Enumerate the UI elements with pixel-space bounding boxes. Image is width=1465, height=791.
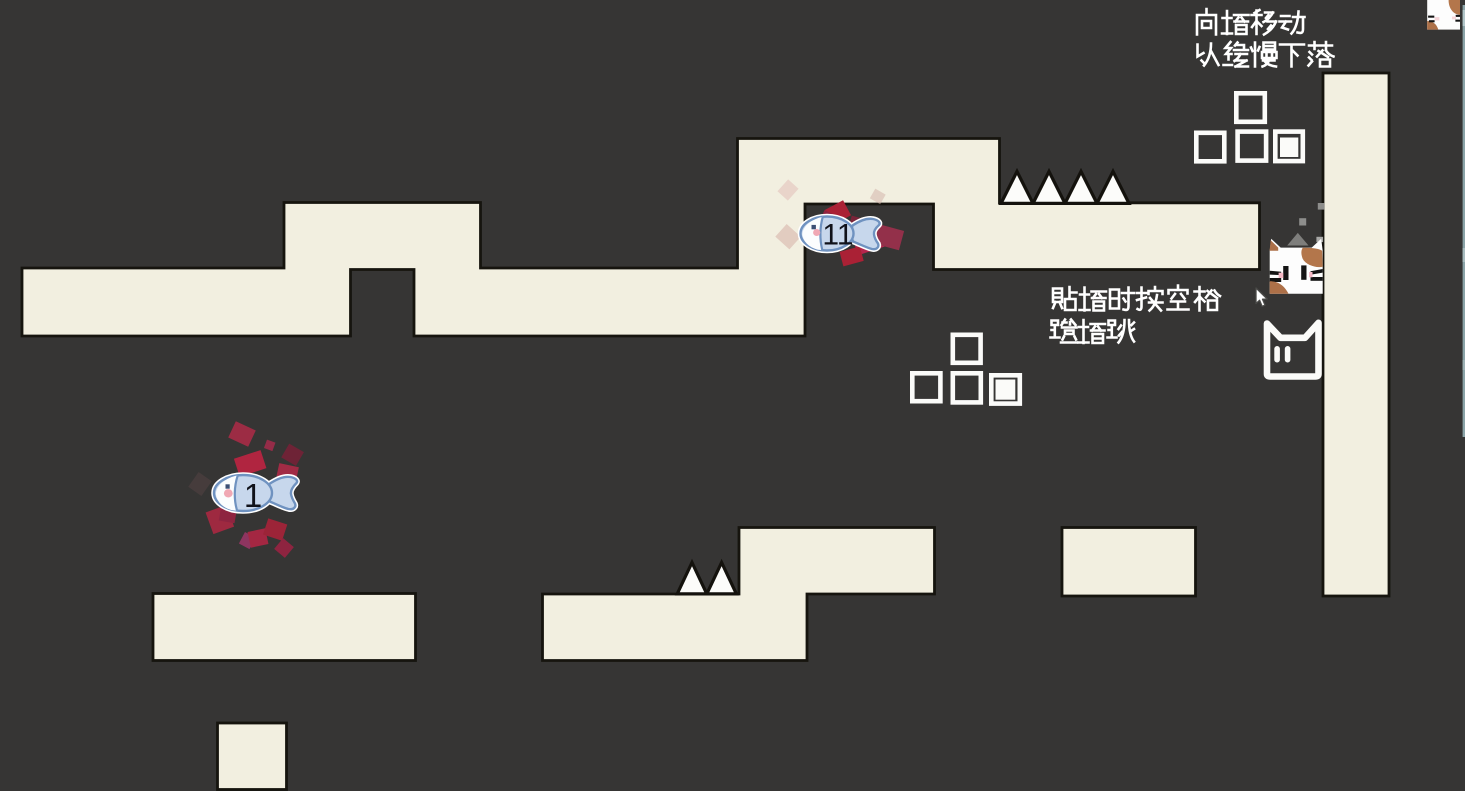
svg-text:1: 1 xyxy=(244,477,262,514)
svg-text:11: 11 xyxy=(822,219,853,252)
